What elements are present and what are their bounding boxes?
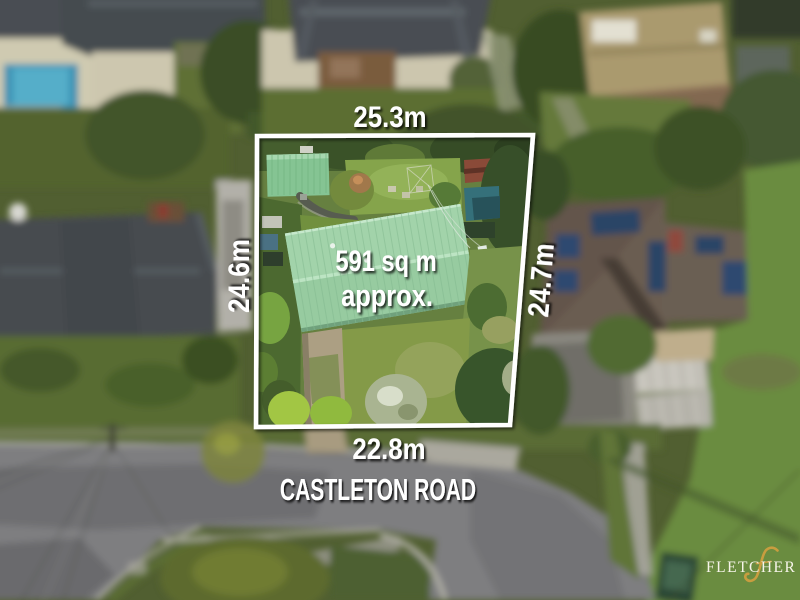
svg-text:22.8m: 22.8m xyxy=(352,432,425,465)
svg-text:CASTLETON ROAD: CASTLETON ROAD xyxy=(280,472,476,507)
svg-text:24.6m: 24.6m xyxy=(222,239,255,313)
svg-text:FLETCHER: FLETCHER xyxy=(706,559,796,576)
svg-text:24.7m: 24.7m xyxy=(522,242,561,318)
svg-text:25.3m: 25.3m xyxy=(353,100,426,133)
svg-text:approx.: approx. xyxy=(341,279,433,314)
svg-text:591 sq m: 591 sq m xyxy=(335,244,436,277)
